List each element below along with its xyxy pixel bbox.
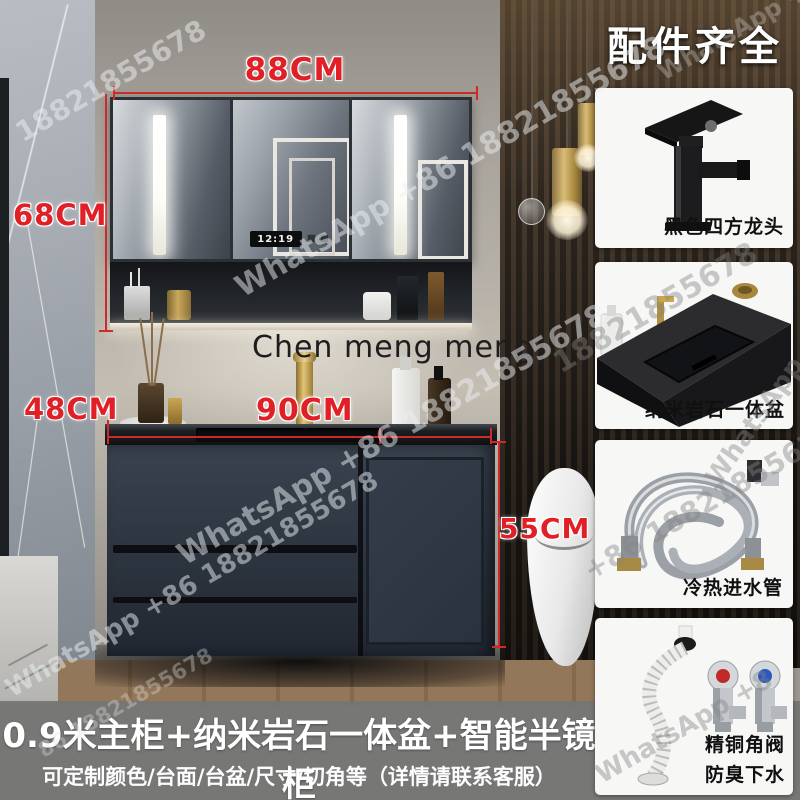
accessory-card-valves-drain: 精铜角阀 防臭下水 — [595, 618, 793, 795]
mirror-door-right — [352, 100, 469, 259]
marble-vein — [26, 222, 85, 547]
brand-watermark: Chen meng meng — [252, 330, 534, 365]
clock-display: 12:19 — [250, 231, 302, 247]
accessory-caption: 纳米岩石一体盆 — [645, 395, 785, 422]
dim-tick — [99, 330, 113, 332]
accessories-title: 配件齐全 — [593, 14, 797, 72]
pendant-cord — [586, 0, 588, 105]
footer-customization-note: 可定制颜色/台面/台盆/尺寸/切角等（详情请联系客服） — [0, 761, 598, 791]
drawer-handle-groove — [113, 545, 357, 553]
clock-widget-icon — [320, 234, 329, 243]
accessory-card-hoses: 冷热进水管 — [595, 440, 793, 608]
cabinet-divider — [358, 445, 363, 656]
shower-floor-area — [0, 556, 58, 705]
brush — [138, 268, 140, 288]
dark-pump-bottle — [428, 378, 451, 426]
amber-bottle — [428, 272, 444, 320]
dim-tick — [107, 420, 109, 444]
accessory-caption: 精铜角阀 — [705, 730, 785, 757]
drawer-divider-groove — [113, 597, 357, 603]
white-pump-bottle — [392, 368, 420, 426]
dim-line-88cm — [113, 92, 478, 94]
smart-mirror-cabinet: 12:19 — [110, 97, 472, 262]
dim-label-cabinet-height: 55CM — [499, 512, 590, 545]
tray-line — [8, 644, 48, 666]
shower-glass-frame — [0, 78, 9, 638]
dim-label-mirror-width: 88CM — [240, 52, 350, 88]
diffuser-reed — [151, 312, 153, 386]
reflected-door-frame — [418, 160, 468, 259]
led-strip-left — [153, 115, 166, 255]
dim-line-90cm — [107, 436, 492, 438]
tray-line — [4, 664, 49, 689]
brush-cup — [124, 286, 150, 320]
product-listing-image: 12:19 — [0, 0, 800, 800]
white-cream-jar — [363, 292, 391, 320]
mirror-door-left — [113, 100, 230, 259]
dim-label-mirror-height: 68CM — [13, 198, 108, 232]
marble-vein — [0, 4, 69, 296]
integrated-basin-recess — [196, 428, 384, 442]
dim-tick — [476, 86, 478, 100]
dim-tick — [492, 441, 506, 443]
cabinet-door-panel — [366, 457, 484, 645]
pendant-cord — [531, 0, 533, 200]
dim-tick — [379, 428, 381, 444]
gold-mini-vase — [168, 398, 182, 424]
mirror-door-center: 12:19 — [233, 100, 350, 259]
shelf-led-edge — [110, 323, 472, 330]
dim-tick — [113, 86, 115, 100]
vanity-main-cabinet — [107, 445, 495, 656]
dim-label-counter-depth: 48CM — [24, 392, 119, 426]
glass-globe-light — [518, 198, 545, 225]
reed-diffuser-jar — [138, 383, 164, 423]
gold-jar — [167, 290, 191, 320]
accessory-card-basin: 纳米岩石一体盆 — [595, 262, 793, 429]
led-strip-right — [394, 115, 407, 255]
accessory-card-faucet: 黑色四方龙头 — [595, 88, 793, 248]
pendant-glow — [546, 200, 588, 240]
accessory-caption: 冷热进水管 — [683, 573, 783, 600]
dim-tick — [492, 646, 506, 648]
pendant-cord — [566, 0, 568, 150]
accessory-caption: 黑色四方龙头 — [664, 212, 784, 239]
dropper-bottle — [397, 276, 418, 320]
brush — [130, 272, 132, 288]
clock-widget-icon — [307, 234, 316, 243]
accessory-caption: 防臭下水 — [705, 760, 785, 787]
dark-pump-head — [434, 366, 443, 380]
dim-label-counter-width: 90CM — [256, 393, 354, 428]
